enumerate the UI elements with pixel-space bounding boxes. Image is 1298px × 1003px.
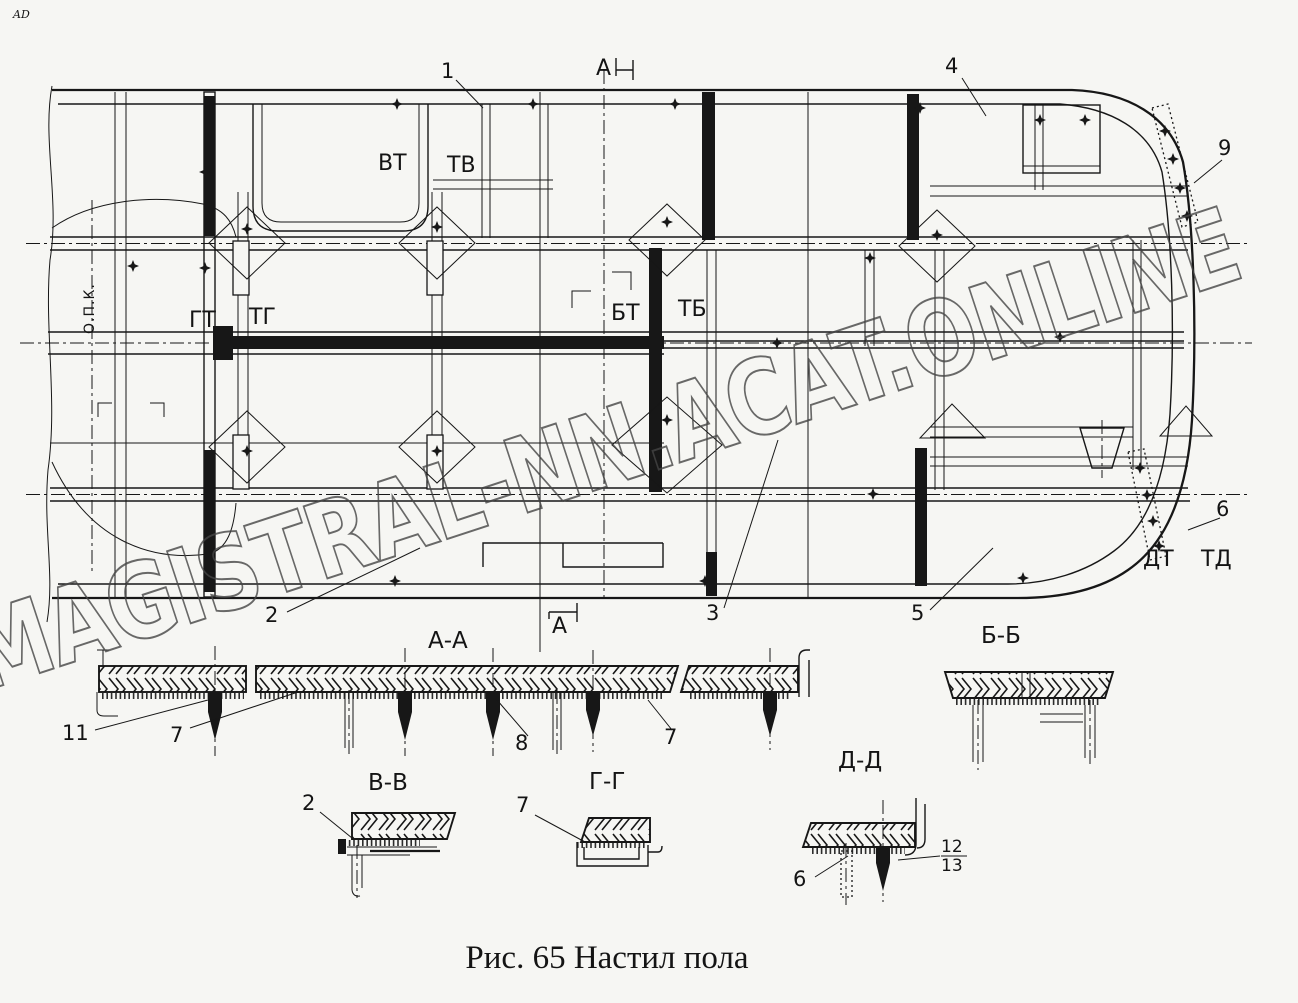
cut-label-d-right: ТД [1200, 547, 1232, 572]
callout-1: 1 [441, 59, 454, 83]
callout-11: 11 [62, 721, 89, 745]
callout-3: 3 [706, 601, 719, 625]
callout-9: 9 [1218, 136, 1231, 160]
section-title-a-a: А-А [428, 628, 468, 654]
callout-13: 13 [941, 856, 963, 876]
callout-12: 12 [941, 837, 963, 857]
callout-7-gg: 7 [516, 793, 529, 817]
engineering-drawing: 1 2 3 4 5 6 9 А А ВТ ТВ ГТ ТГ БТ ТБ ДТ Т… [0, 0, 1298, 1003]
callout-2-vv: 2 [302, 791, 315, 815]
cut-label-b-right: ТБ [677, 297, 707, 322]
cut-label-g-left: ГТ [189, 308, 216, 333]
section-view-v-v: В-В 2 [302, 770, 455, 898]
callout-6: 6 [1216, 497, 1229, 521]
figure-caption: Рис. 65 Настил пола [465, 940, 749, 976]
cut-label-g-right: ТГ [248, 305, 276, 330]
callout-8: 8 [515, 731, 528, 755]
callout-7b: 7 [664, 725, 677, 749]
cut-label-a-top: А [596, 56, 611, 81]
callout-7a: 7 [170, 723, 183, 747]
cut-label-d-left: ДТ [1143, 547, 1174, 572]
callout-4: 4 [945, 54, 958, 78]
section-title-d-d: Д-Д [838, 748, 882, 774]
section-title-g-g: Г-Г [589, 769, 625, 795]
callout-5: 5 [911, 601, 924, 625]
cut-label-v-left: ВТ [378, 151, 407, 176]
axis-label-opk: О.П.К. [82, 283, 98, 334]
cut-label-b-left: БТ [611, 301, 640, 326]
section-view-d-d: Д-Д 6 12 13 [793, 748, 967, 905]
scanned-drawing-page: 1 2 3 4 5 6 9 А А ВТ ТВ ГТ ТГ БТ ТБ ДТ Т… [0, 0, 1298, 1003]
section-title-b-b: Б-Б [981, 623, 1021, 649]
callout-6-dd: 6 [793, 867, 806, 891]
cut-label-a-bottom: А [552, 614, 567, 639]
watermark-text: MAGISTRAL-NN.ACAT.ONLINE [0, 184, 1253, 715]
cut-label-v-right: ТВ [446, 153, 476, 178]
section-view-b-b: Б-Б [945, 623, 1113, 770]
corner-mark: AD [12, 8, 30, 21]
section-view-g-g: Г-Г 7 [516, 769, 662, 866]
section-title-v-v: В-В [368, 770, 408, 796]
